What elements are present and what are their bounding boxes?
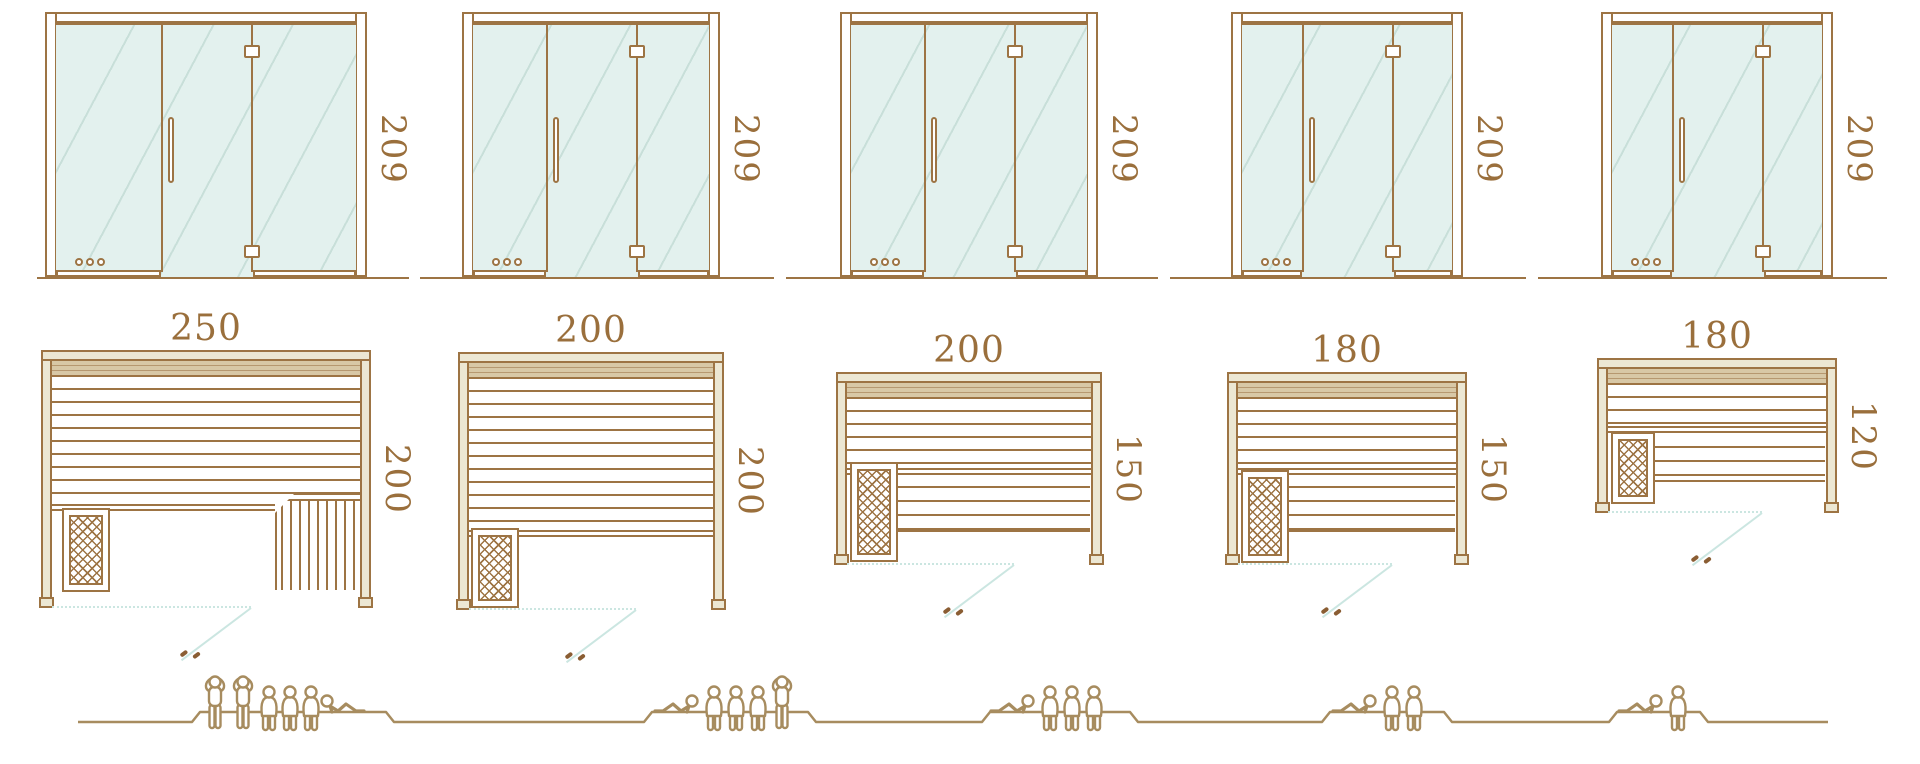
width-dimension-label: 180 (1597, 316, 1837, 357)
person-siting-icon (261, 687, 276, 731)
width-dimension-label: 200 (836, 330, 1102, 371)
ground-line (1538, 277, 1887, 279)
wall-foot (1454, 554, 1469, 565)
depth-dimension-label: 200 (730, 438, 770, 524)
height-dimension-label: 209 (1469, 106, 1509, 192)
bench-slats (847, 399, 1091, 471)
glass-bottom-rail (1016, 270, 1087, 277)
depth-dimension-label: 120 (1843, 393, 1883, 479)
wall-foot (358, 597, 373, 608)
ground-line (37, 277, 409, 279)
door-frame-top (462, 12, 720, 23)
plan-back-wall (836, 372, 1102, 383)
door-handle-mark (943, 607, 952, 615)
depth-dimension-label: 150 (1108, 426, 1148, 512)
door-handle (168, 117, 174, 183)
glass-divider (546, 23, 548, 272)
bench-slats (52, 377, 360, 504)
lower-bench-slats (1655, 434, 1825, 482)
door-swing-line (944, 564, 1015, 618)
wall-foot (1824, 502, 1839, 513)
door-hinge-icon (1755, 45, 1771, 58)
heater (62, 508, 110, 592)
wall-foot (1089, 554, 1104, 565)
glass-divider (1762, 23, 1764, 272)
height-dimension-label: 209 (1839, 106, 1879, 192)
vent-dots-icon (1631, 258, 1661, 266)
door-handle-mark (1703, 556, 1712, 564)
glass-front (1242, 23, 1452, 277)
person-standing-icon (234, 677, 252, 729)
glass-bottom-rail (253, 270, 356, 277)
glass-divider (161, 23, 163, 272)
bench-slats (1238, 399, 1456, 471)
heater (1611, 432, 1655, 504)
glass-divider (251, 23, 253, 272)
person-siting-icon (1064, 687, 1079, 731)
door-hinge-icon (1755, 245, 1771, 258)
door-closed-dotted-line (52, 606, 251, 608)
door-handle-mark (1691, 555, 1700, 563)
glass-divider (1672, 23, 1674, 272)
elevation-view-5 (1601, 12, 1833, 277)
vent-dots-icon (870, 258, 900, 266)
backrest-strip (847, 383, 1091, 399)
door-handle-mark (1333, 608, 1342, 616)
heater (850, 462, 898, 562)
door-hinge-icon (1007, 45, 1023, 58)
people-baseline (78, 712, 1828, 722)
height-dimension-label: 209 (373, 106, 413, 192)
plan-right-wall (360, 359, 371, 599)
door-swing-line (1322, 564, 1393, 618)
wall-foot (711, 599, 726, 610)
glass-front (56, 23, 356, 277)
glass-divider (1392, 23, 1394, 272)
ground-line (786, 277, 1158, 279)
plan-left-wall (1597, 367, 1608, 504)
glass-bottom-rail (1764, 270, 1822, 277)
plan-right-wall (1091, 381, 1102, 556)
plan-right-wall (713, 361, 724, 601)
glass-bottom-rail (473, 270, 546, 277)
plan-left-wall (1227, 381, 1238, 556)
elevation-view-4 (1231, 12, 1463, 277)
door-hinge-icon (1007, 245, 1023, 258)
backrest-strip (52, 361, 360, 377)
plan-back-wall (1227, 372, 1467, 383)
glass-bottom-rail (638, 270, 709, 277)
door-swing-line (1692, 512, 1763, 566)
plan-view-2 (458, 352, 724, 610)
person-lieing-icon (991, 696, 1034, 713)
plan-back-wall (458, 352, 724, 363)
plan-back-wall (41, 350, 371, 361)
door-frame-top (45, 12, 367, 23)
glass-divider (1302, 23, 1304, 272)
door-hinge-icon (629, 45, 645, 58)
width-dimension-label: 180 (1227, 330, 1467, 371)
lower-bench-slats (898, 474, 1090, 532)
vent-dots-icon (1261, 258, 1291, 266)
door-handle (553, 117, 559, 183)
vent-dots-icon (75, 258, 105, 266)
glass-bottom-rail (1242, 270, 1302, 277)
person-siting-icon (750, 687, 765, 731)
glass-bottom-rail (1394, 270, 1452, 277)
door-frame-right (355, 12, 367, 277)
door-hinge-icon (1385, 245, 1401, 258)
glass-divider (924, 23, 926, 272)
door-frame-top (1231, 12, 1463, 23)
person-siting-icon (728, 687, 743, 731)
person-standing-icon (206, 677, 224, 729)
glass-front (473, 23, 709, 277)
height-dimension-label: 209 (726, 106, 766, 192)
backrest-strip (1238, 383, 1456, 399)
heater (471, 528, 519, 608)
plan-view-5 (1597, 358, 1837, 513)
plan-view-3 (836, 372, 1102, 565)
door-frame-right (1451, 12, 1463, 277)
door-closed-dotted-line (1238, 563, 1392, 565)
person-siting-icon (1042, 687, 1057, 731)
door-hinge-icon (629, 245, 645, 258)
person-lieing-icon (1333, 696, 1376, 713)
door-closed-dotted-line (1608, 511, 1762, 513)
door-frame-right (1086, 12, 1098, 277)
door-frame-right (708, 12, 720, 277)
heater (1241, 470, 1289, 563)
bench-slats (1608, 385, 1826, 426)
door-hinge-icon (244, 45, 260, 58)
person-siting-icon (303, 687, 318, 731)
glass-bottom-rail (1612, 270, 1672, 277)
person-siting-icon (1384, 687, 1399, 731)
lower-bench-slats (1289, 474, 1455, 532)
elevation-view-1 (45, 12, 367, 277)
elevation-view-2 (462, 12, 720, 277)
plan-right-wall (1456, 381, 1467, 556)
capacity-figures (0, 650, 1920, 764)
depth-dimension-label: 200 (377, 436, 417, 522)
plan-view-1 (41, 350, 371, 608)
plan-left-wall (836, 381, 847, 556)
elevation-view-3 (840, 12, 1098, 277)
glass-front (851, 23, 1087, 277)
door-handle-mark (1321, 607, 1330, 615)
side-bench (275, 493, 360, 590)
plan-left-wall (458, 361, 469, 601)
door-closed-dotted-line (469, 608, 636, 610)
plan-right-wall (1826, 367, 1837, 504)
width-dimension-label: 200 (458, 310, 724, 351)
plan-view-4 (1227, 372, 1467, 565)
ground-line (1170, 277, 1526, 279)
plan-back-wall (1597, 358, 1837, 369)
door-handle (1309, 117, 1315, 183)
backrest-strip (469, 363, 713, 379)
person-siting-icon (1670, 687, 1685, 731)
person-siting-icon (1406, 687, 1421, 731)
person-lieing-icon (655, 696, 698, 713)
glass-divider (1014, 23, 1016, 272)
door-frame-top (840, 12, 1098, 23)
sauna-size-diagram: 209 209 209 209 209 250 200 200 180 180 (0, 0, 1920, 764)
bench-slats (469, 379, 713, 530)
glass-divider (636, 23, 638, 272)
door-frame-top (1601, 12, 1833, 23)
person-siting-icon (706, 687, 721, 731)
door-hinge-icon (1385, 45, 1401, 58)
door-handle-mark (955, 608, 964, 616)
vent-dots-icon (492, 258, 522, 266)
backrest-strip (1608, 369, 1826, 385)
person-siting-icon (1086, 687, 1101, 731)
height-dimension-label: 209 (1104, 106, 1144, 192)
width-dimension-label: 250 (41, 308, 371, 349)
glass-front (1612, 23, 1822, 277)
person-standing-icon (773, 677, 791, 729)
person-lieing-icon (322, 696, 365, 713)
door-hinge-icon (244, 245, 260, 258)
person-lieing-icon (1619, 696, 1662, 713)
ground-line (420, 277, 774, 279)
depth-dimension-label: 150 (1473, 426, 1513, 512)
plan-left-wall (41, 359, 52, 599)
door-frame-right (1821, 12, 1833, 277)
door-closed-dotted-line (847, 563, 1014, 565)
person-siting-icon (282, 687, 297, 731)
door-handle (1679, 117, 1685, 183)
glass-bottom-rail (851, 270, 924, 277)
door-handle (931, 117, 937, 183)
glass-bottom-rail (56, 270, 161, 277)
